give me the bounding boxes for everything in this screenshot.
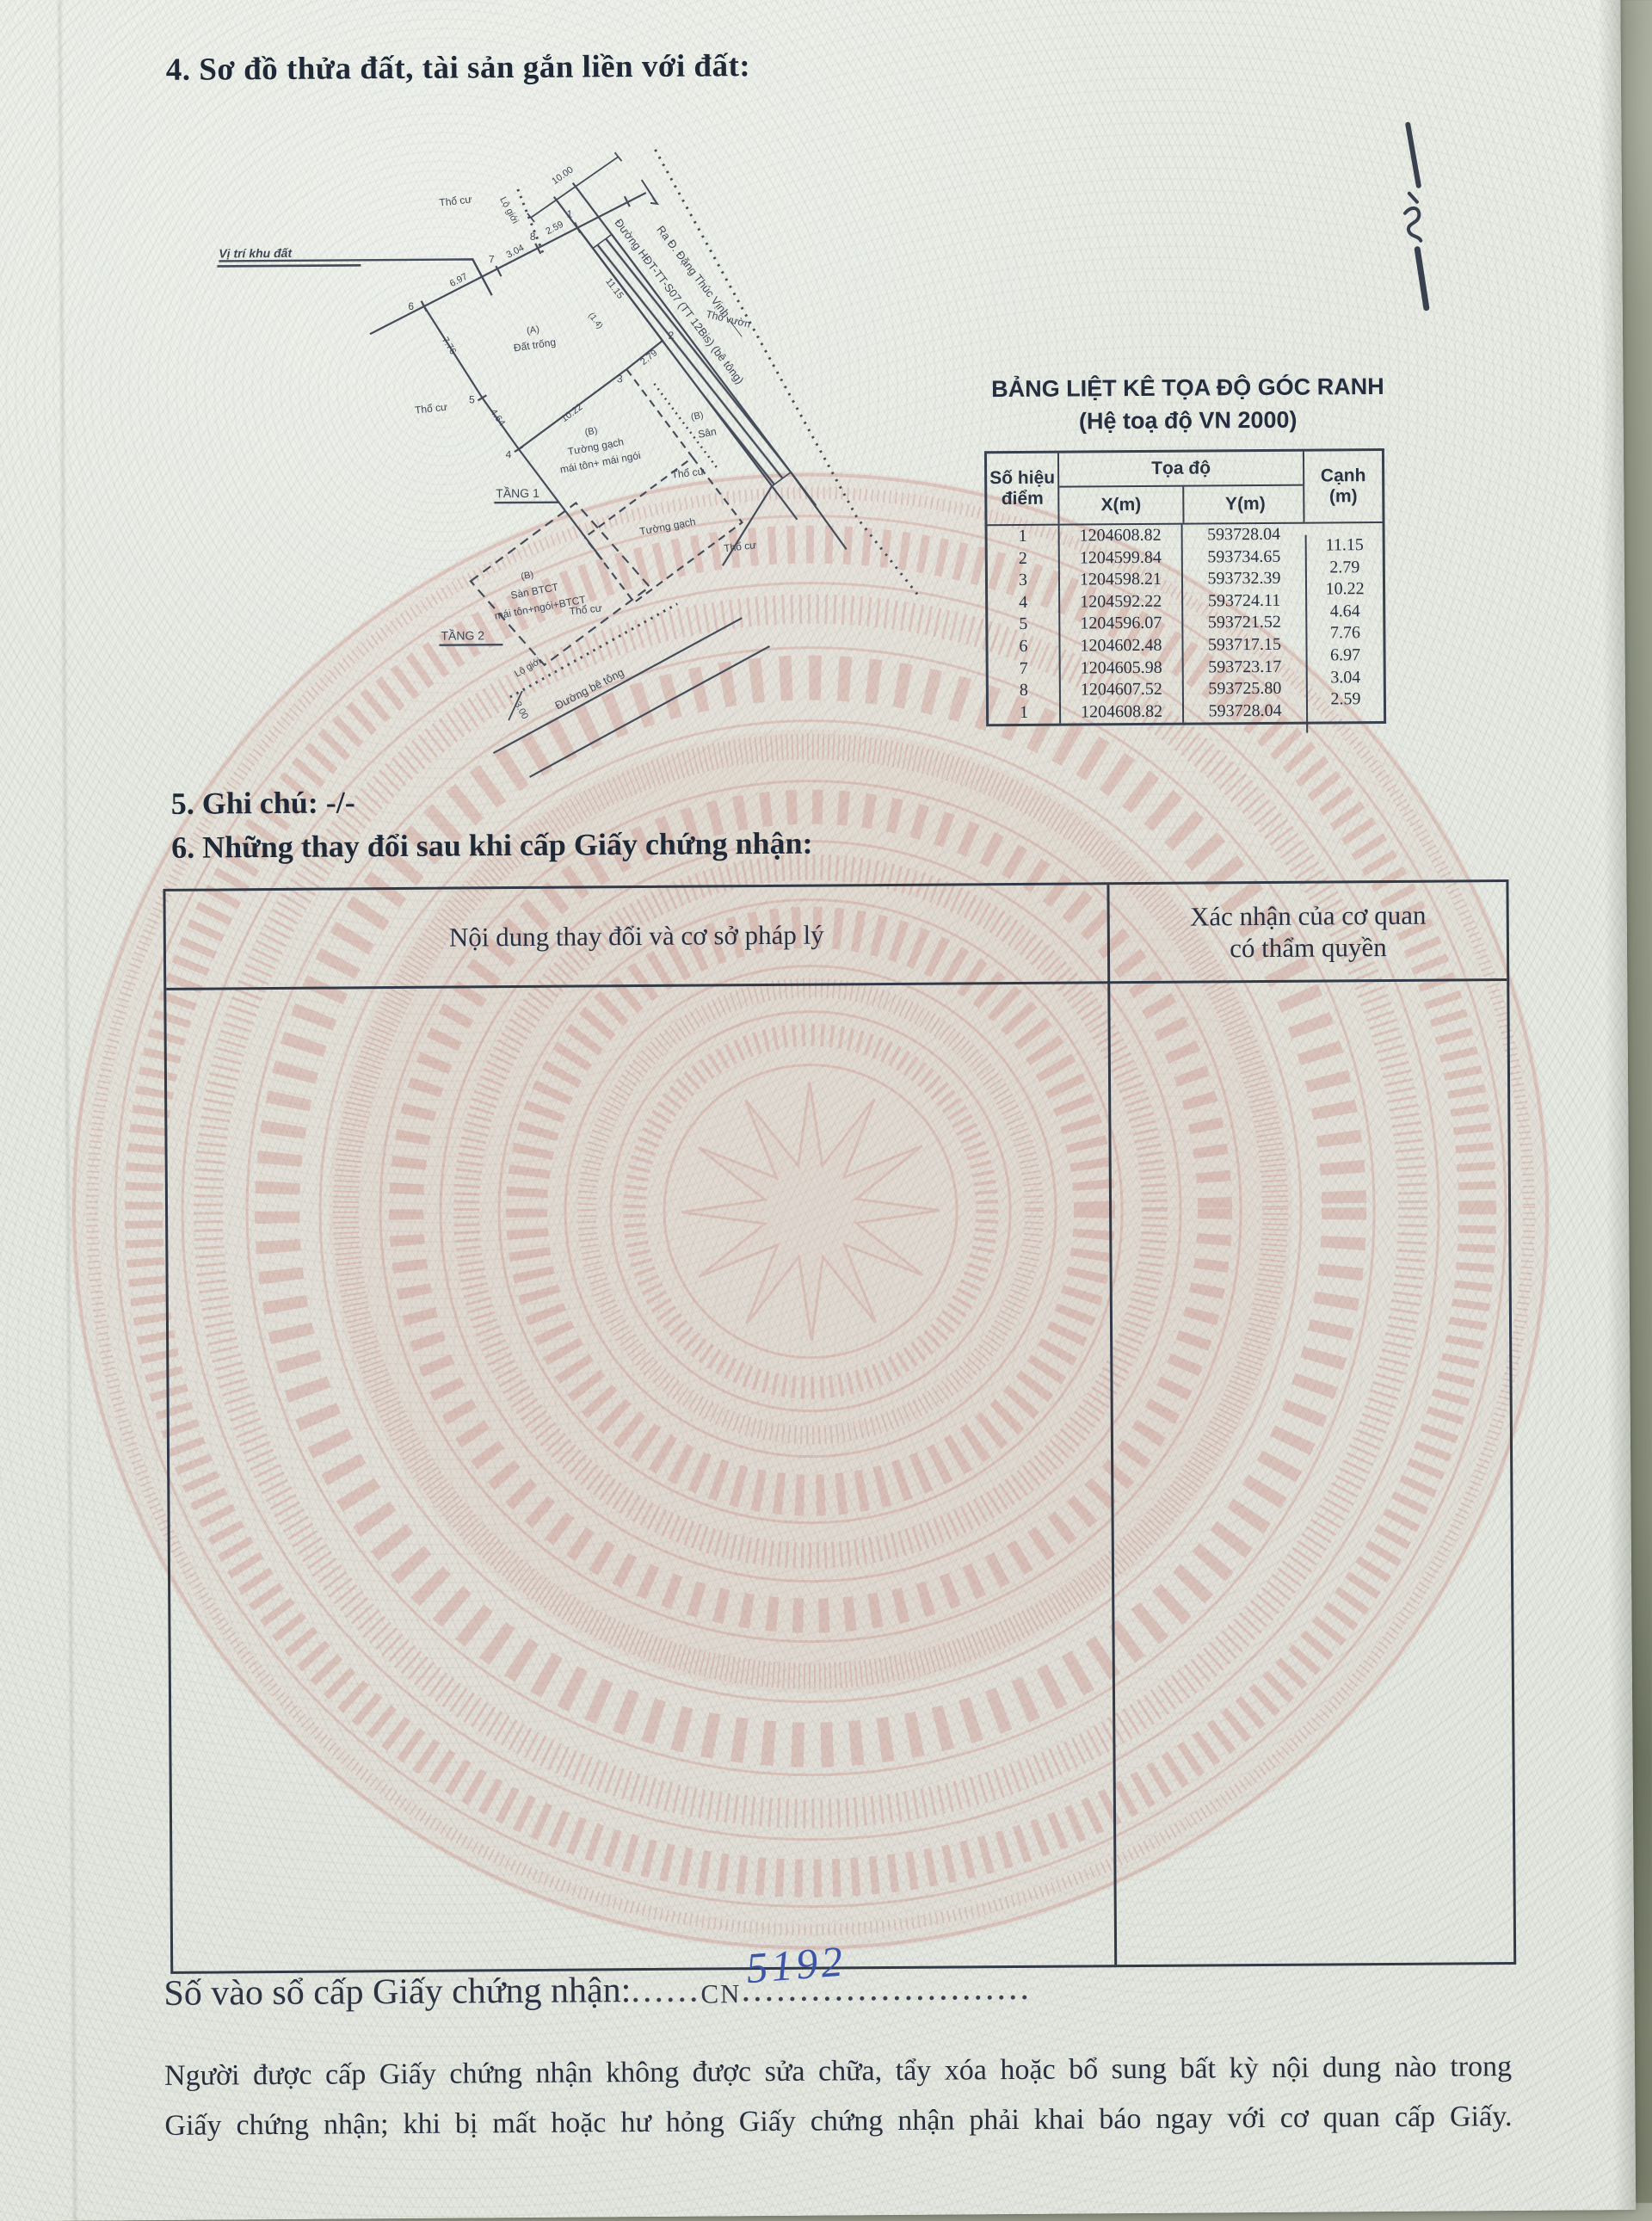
cell-point: 6 [988,636,1058,658]
cell-x: 1204592.22 [1058,590,1181,614]
cell-point: 4 [988,591,1058,614]
cell-edge: 10.22 [1305,578,1383,601]
registry-cn-prefix: CN [700,1978,741,2008]
cell-x: 1204608.82 [1058,525,1181,548]
dim-3-00: 3.00 [512,700,530,721]
plot-diagram: Vị trí khu đất Thổ cư Thổ cư Thổ cư Thổ … [188,113,966,789]
diagram-lo-gioi-bottom: Lộ giới [513,656,543,679]
coordinate-table-header: Số hiệu điểm Tọa độ X(m) Y(m) Cạnh (m) [987,451,1383,524]
diagram-floor2-label: TẦNG 2 [441,628,484,642]
cell-y: 593734.65 [1181,546,1305,569]
header-point-no: Số hiệu điểm [987,453,1058,525]
vertex-6: 6 [408,300,414,312]
cell-y: 593728.04 [1182,700,1306,723]
vertex-3: 3 [617,373,623,385]
registry-label: Số vào sổ cấp Giấy chứng nhận: [163,1971,631,2014]
diagram-location-label: Vị trí khu đất [219,246,293,261]
cell-y: 593725.80 [1182,678,1306,701]
vertex-1: 1 [567,208,573,220]
svg-text:Sân: Sân [697,425,718,441]
dim-10-22: 10.22 [559,402,584,424]
dim-6-97: 6.97 [448,272,470,290]
cell-edge: 4.64 [1305,601,1383,623]
cell-x: 1204602.48 [1058,635,1181,658]
cell-edge: 2.59 [1306,688,1384,711]
cell-y: 593721.52 [1181,612,1305,635]
cell-point: 7 [989,657,1059,680]
svg-text:Sàn BTCT: Sàn BTCT [509,581,559,602]
handwritten-registry-number: 5192 [744,1935,848,1993]
cell-point: 2 [988,547,1058,570]
changes-table: Nội dung thay đổi và cơ sở pháp lý Xác n… [163,879,1516,1974]
coordinate-row: 1 1204608.82 593728.04 11.15 [988,523,1383,548]
footer-warning: Người được cấp Giấy chứng nhận không đượ… [164,2042,1513,2151]
cell-edge: 6.97 [1306,645,1384,667]
cell-point: 1 [988,526,1058,548]
svg-text:mái tôn+ngói+BTCT: mái tôn+ngói+BTCT [494,593,588,621]
dim-1-4: (1.4) [586,311,604,330]
cell-x: 1204598.21 [1058,569,1181,592]
cell-y: 593732.39 [1181,568,1305,591]
section5-note: 5. Ghi chú: -/- [171,784,355,821]
cell-y: 593717.15 [1181,634,1305,657]
cell-edge: 11.15 [1305,534,1383,557]
cell-y: 593723.17 [1182,656,1306,679]
coordinate-table-title-line1: BẢNG LIỆT KÊ TỌA ĐỘ GÓC RANH [964,370,1411,406]
vertex-2: 2 [669,330,675,342]
diagram-parcel-a: (A) [526,324,539,336]
certificate-page: 4. Sơ đồ thửa đất, tài sản gắn liền với … [0,0,1636,2221]
coordinate-table-title: BẢNG LIỆT KÊ TỌA ĐỘ GÓC RANH (Hệ toạ độ … [964,370,1412,439]
cell-point: 3 [988,570,1058,592]
svg-text:(B): (B) [584,426,599,438]
cell-point: 8 [989,680,1059,702]
dim-3-04: 3.04 [505,243,527,261]
svg-text:(B): (B) [690,410,705,423]
header-x: X(m) [1059,487,1182,524]
changes-table-divider [1106,885,1117,1965]
changes-col-confirm-header: Xác nhận của cơ quan có thẩm quyền [1109,882,1507,981]
cell-x: 1204608.82 [1059,700,1182,724]
diagram-tho-cu-2: Thổ cư [414,401,447,416]
dim-2-79: 2.79 [638,348,659,367]
diagram-floor1-label: TẦNG 1 [496,486,539,500]
vertex-8: 8 [530,231,536,243]
dim-7-76: 7.76 [440,336,459,357]
cell-x: 1204599.84 [1058,546,1181,570]
cell-x: 1204605.98 [1059,657,1182,680]
dim-10-00: 10.00 [550,164,575,187]
vertex-4: 4 [506,448,512,460]
vertex-7: 7 [489,253,495,265]
cell-point: 5 [988,614,1058,636]
marble-table-background: { "document": { "section4_title": "4. Sơ… [0,0,1652,2203]
diagram-tho-cu-1: Thổ cư [439,193,472,208]
cell-edge: 2.79 [1305,557,1383,579]
dim-4-64: 4.64 [488,407,507,428]
cell-x: 1204596.07 [1058,613,1181,636]
footer-line2: Giấy chứng nhận; khi bị mất hoặc hư hỏng… [164,2092,1512,2151]
changes-col-content-header: Nội dung thay đổi và cơ sở pháp lý [165,885,1107,988]
svg-text:(B): (B) [521,570,535,582]
diagram-building1-label: (B) Tường gạch mái tôn+ mái ngói [553,419,642,476]
header-y: Y(m) [1182,486,1306,523]
diagram-tho-cu-3: Thổ cư [671,466,705,481]
vertex-5: 5 [469,393,475,405]
section6-title: 6. Những thay đổi sau khi cấp Giấy chứng… [171,825,813,866]
registry-line: Số vào sổ cấp Giấy chứng nhận:......CN51… [163,1967,1032,2014]
cell-y: 593728.04 [1181,524,1305,547]
cell-edge [1306,711,1384,733]
header-edge: Cạnh (m) [1304,451,1383,522]
diagram-road-concrete: Đường bê tông [552,666,626,713]
cell-x: 1204607.52 [1059,679,1182,702]
header-coords: Tọa độ [1059,452,1303,488]
dim-2-59: 2.59 [544,219,565,238]
section4-title: 4. Sơ đồ thửa đất, tài sản gắn liền với … [166,47,751,89]
coordinate-table-body: 1 1204608.82 593728.04 11.15 2 1204599.8… [988,521,1384,725]
pen-marks [1358,101,1480,342]
diagram-building2-label: Tường gạch [638,515,696,538]
cell-y: 593724.11 [1181,589,1305,613]
coordinate-table: Số hiệu điểm Tọa độ X(m) Y(m) Cạnh (m) 1 [984,448,1386,727]
diagram-parcel-a-desc: Đất trống [513,336,557,354]
cell-edge: 3.04 [1306,667,1384,689]
cell-point: 1 [989,701,1059,724]
page-edge-shadow [1598,0,1636,2210]
leader-dots-1: ...... [631,1971,700,2011]
footer-line1: Người được cấp Giấy chứng nhận không đượ… [164,2042,1512,2101]
diagram-lo-gioi-top: Lộ giới [497,195,520,225]
cell-edge: 7.76 [1305,622,1383,645]
diagram-tho-cu-4: Thổ cư [724,539,757,554]
coordinate-table-title-line2: (Hệ toạ độ VN 2000) [965,403,1412,439]
diagram-yard-label: (B) Sân [690,409,718,441]
